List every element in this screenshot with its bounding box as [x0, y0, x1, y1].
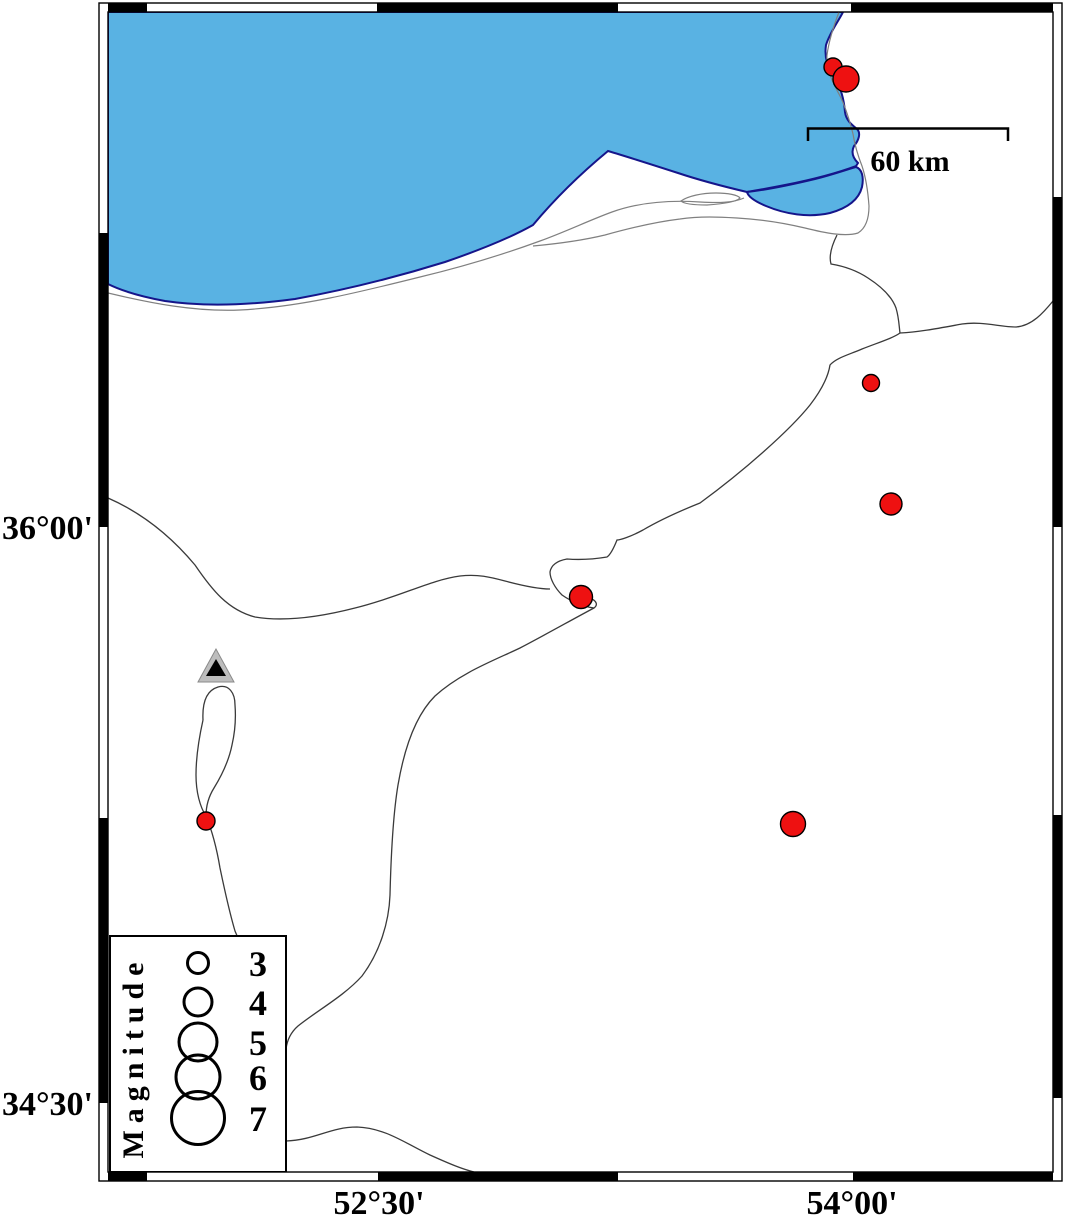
- sea-polygon: [108, 12, 859, 305]
- earthquake-marker: [197, 812, 215, 830]
- frame-seg: [99, 818, 108, 1103]
- legend-label-m5: 5: [249, 1023, 267, 1063]
- road-bay-junction: [830, 235, 900, 333]
- bottom-axis-label-5400: 54°00': [806, 1185, 897, 1220]
- station-triangle-marker: [198, 649, 234, 682]
- left-axis-label-36: 36°00': [2, 510, 93, 547]
- earthquake-marker: [880, 493, 902, 515]
- earthquake-marker: [781, 812, 806, 837]
- legend-label-m4: 4: [249, 983, 267, 1023]
- bottom-axis-label-5230: 52°30': [333, 1185, 424, 1220]
- left-axis-label-3430: 34°30': [2, 1086, 93, 1123]
- road-southwest-branch: [286, 608, 594, 1049]
- frame-seg: [378, 1172, 618, 1181]
- map-page: 60 km Magnitude 34567 36°00' 3: [0, 0, 1066, 1220]
- map-canvas: 60 km Magnitude 34567: [108, 12, 1053, 1172]
- legend-label-m3: 3: [249, 944, 267, 984]
- seismicity-map-figure: 60 km Magnitude 34567 36°00' 3: [0, 0, 1066, 1220]
- scale-bar-label: 60 km: [870, 145, 949, 178]
- frame-seg: [851, 3, 1053, 12]
- legend-title: Magnitude: [117, 955, 150, 1158]
- frame-seg: [853, 1172, 1053, 1181]
- earthquake-marker: [833, 66, 859, 92]
- lagoon-outline: [681, 193, 740, 205]
- frame-seg: [108, 3, 147, 12]
- frame-seg: [108, 1172, 147, 1181]
- frame-seg: [377, 3, 618, 12]
- frame-seg: [99, 233, 108, 527]
- stream-arch: [203, 686, 235, 816]
- road-east-branch: [900, 301, 1053, 333]
- legend-label-m6: 6: [249, 1058, 267, 1098]
- earthquake-marker: [863, 375, 880, 392]
- legend-label-m7: 7: [249, 1099, 267, 1139]
- frame-seg: [1053, 815, 1062, 1098]
- road-west-bowl: [108, 498, 550, 619]
- earthquake-marker: [570, 586, 593, 609]
- frame-seg: [1053, 197, 1062, 527]
- road-main-diagonal: [550, 333, 900, 608]
- road-bottom-left: [286, 1127, 474, 1172]
- magnitude-legend: Magnitude 34567: [110, 936, 286, 1172]
